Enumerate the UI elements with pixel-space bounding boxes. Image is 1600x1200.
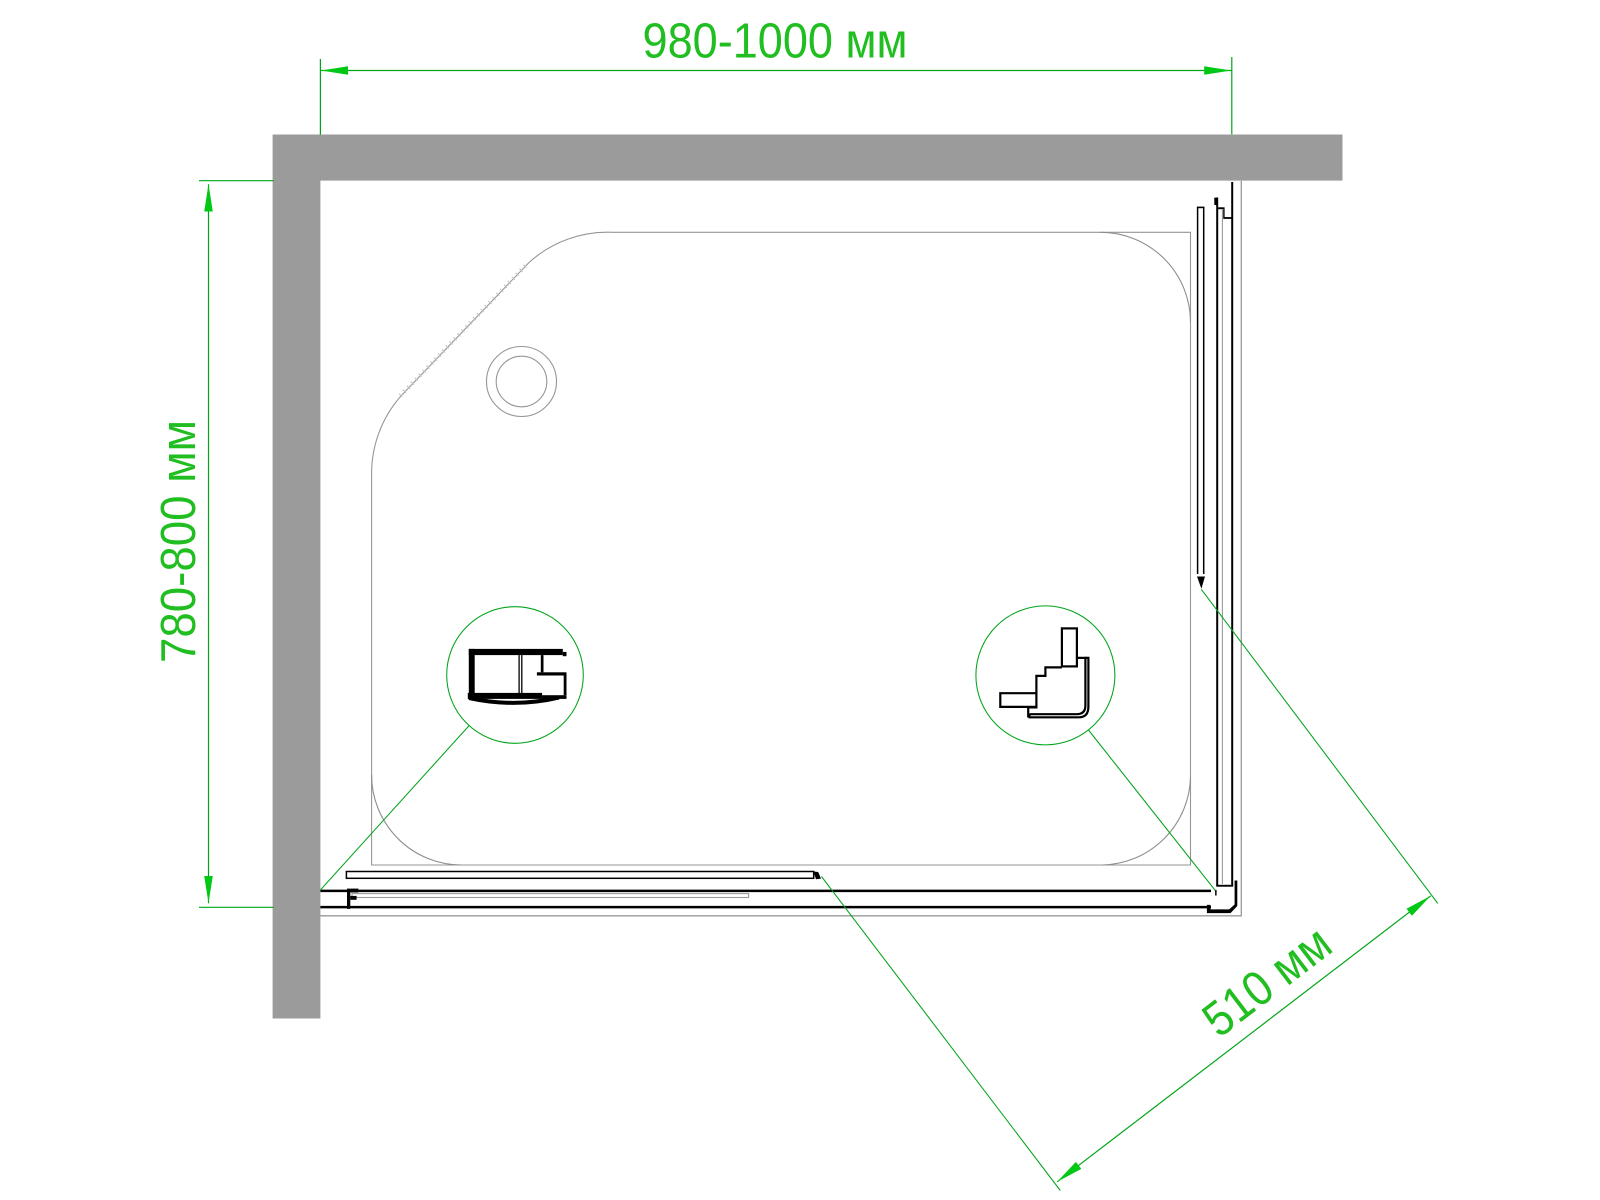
svg-text:780-800 мм: 780-800 мм: [152, 420, 206, 663]
svg-text:980-1000 мм: 980-1000 мм: [643, 14, 908, 68]
